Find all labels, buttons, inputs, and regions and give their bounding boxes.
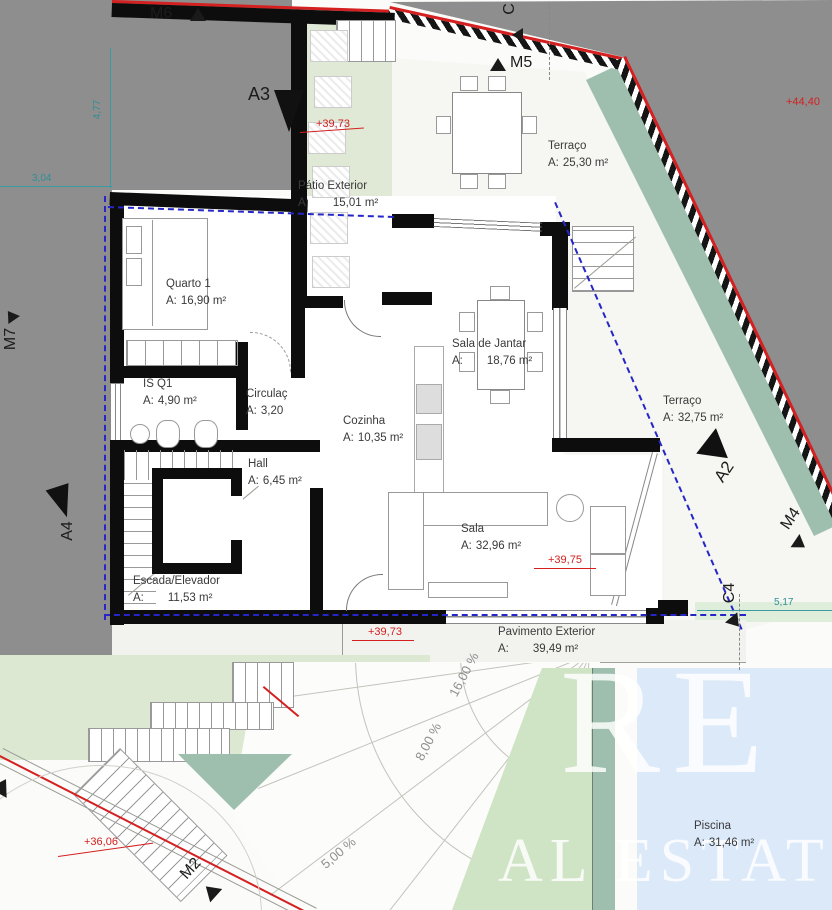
south-wall (110, 610, 446, 624)
toilet-symbol (156, 420, 180, 448)
marker-a3: A3 (248, 84, 270, 105)
marker-a3-arrow-icon (274, 90, 304, 132)
room-name: Sala de Jantar (452, 336, 532, 353)
area-prefix: A: (246, 405, 257, 417)
terrace-chair (488, 76, 506, 91)
room-name: IS Q1 (143, 376, 197, 393)
room-name: Escada/Elevador (133, 573, 220, 590)
room-label-hall: Hall A:6,45 m² (248, 456, 302, 491)
kitchen-appliance (416, 424, 442, 460)
jantar-chair (527, 312, 543, 332)
marker-m7: M7 (2, 328, 20, 350)
room-name: Sala (461, 521, 521, 538)
watermark-line1: RE (560, 636, 776, 808)
level-site-top: +44,40 (786, 96, 820, 108)
room-label-sala-de-jantar: Sala de Jantar A:18,76 m² (452, 336, 532, 371)
jantar-chair (490, 390, 510, 404)
room-name: Hall (248, 456, 302, 473)
room-name: Cozinha (343, 413, 403, 430)
area-value: 15,01 m² (333, 197, 378, 209)
area-value: 18,76 m² (487, 355, 532, 367)
room-label-piscina: Piscina A:31,46 m² (694, 818, 754, 853)
hall-sala-divider (310, 488, 323, 610)
dim-line-right (697, 610, 832, 611)
sofa-chaise (388, 492, 424, 590)
dim-value-right: 5,17 (774, 597, 793, 608)
wardrobe-symbol (126, 340, 238, 366)
patio-west-wall (291, 10, 307, 302)
area-prefix: A: (166, 295, 177, 307)
armchair-symbol (590, 506, 626, 554)
marker-m5-triangle-icon (490, 58, 506, 71)
room-label-circulacao: Circulaç A:3,20 (246, 386, 288, 421)
section-line-c4 (739, 594, 740, 670)
terrace-chair (460, 174, 478, 189)
property-dash-left (104, 196, 106, 620)
bed-blanket-line (152, 220, 153, 326)
bidet-symbol (194, 420, 218, 448)
room-name: Terraço (663, 393, 723, 410)
room-label-terraco-top: Terraço A:25,30 m² (548, 138, 608, 173)
terrace-chair (436, 116, 451, 134)
stepping-stone (310, 30, 348, 62)
area-value: 16,90 m² (181, 295, 226, 307)
terrace-dividing-wall (552, 438, 660, 452)
west-window (110, 383, 124, 443)
marker-c4: C4 (721, 583, 739, 603)
kitchen-appliance (416, 384, 442, 414)
room-name: Quarto 1 (166, 276, 226, 293)
section-line-c (549, 2, 550, 80)
dim-value-vertical: 4,77 (92, 100, 103, 119)
area-prefix: A: (694, 837, 705, 849)
dim-value-horizontal: 3,04 (32, 173, 51, 184)
stepping-stone (312, 256, 350, 288)
marker-c-top: C (501, 3, 519, 15)
area-value: 6,45 m² (263, 475, 302, 487)
room-label-patio-exterior: Pátio Exterior A:15,01 m² (298, 178, 378, 213)
terrace-dining-table (452, 92, 522, 174)
area-value: 31,46 m² (709, 837, 754, 849)
room-label-pavimento-exterior: Pavimento Exterior A:39,49 m² (498, 624, 595, 659)
jantar-east-window (553, 308, 567, 438)
south-window (446, 610, 646, 624)
room-label-is-q1: IS Q1 A:4,90 m² (143, 376, 197, 411)
jantar-chair (459, 312, 475, 332)
watermark-line2: AL ESTATE (498, 826, 832, 897)
marker-a4: A4 (59, 521, 77, 541)
terrace-chair (460, 76, 478, 91)
room-name: Terraço (548, 138, 608, 155)
side-table-round (556, 494, 584, 522)
property-dash-bottom (104, 614, 746, 616)
west-wall-lower (110, 441, 124, 625)
area-value: 39,49 m² (533, 643, 578, 655)
room-label-quarto1: Quarto 1 A:16,90 m² (166, 276, 226, 311)
jantar-north-wall-west (392, 214, 434, 228)
terrace-chair (522, 116, 537, 134)
area-value: 10,35 m² (358, 432, 403, 444)
dim-line-vertical (110, 48, 111, 188)
elevator-shaft (152, 468, 242, 574)
jantar-east-wall (552, 224, 568, 310)
area-prefix: A: (248, 475, 259, 487)
jantar-chair (490, 286, 510, 300)
room-name: Pavimento Exterior (498, 624, 595, 641)
kitchen-west-wall (291, 300, 305, 378)
area-value: 3,20 (261, 405, 283, 417)
bed-pillow (126, 258, 142, 286)
area-prefix: A: (298, 197, 309, 209)
level-driveway: +36,06 (84, 836, 118, 848)
room-name: Piscina (694, 818, 754, 835)
stepping-stone (314, 76, 352, 108)
room-label-sala: Sala A:32,96 m² (461, 521, 521, 556)
marker-m6-triangle-icon (190, 8, 206, 21)
area-prefix: A: (343, 432, 354, 444)
area-prefix: A: (663, 412, 674, 424)
marker-m6: M6 (150, 5, 172, 23)
area-value: 4,90 m² (158, 395, 197, 407)
armchair-symbol (590, 554, 626, 596)
area-prefix: A: (461, 540, 472, 552)
area-prefix: A: (133, 592, 144, 604)
tv-bench (428, 582, 508, 598)
marker-c-triangle-icon (512, 28, 523, 42)
room-label-terraco-right: Terraço A:32,75 m² (663, 393, 723, 428)
bed-pillow (126, 226, 142, 254)
room-name: Pátio Exterior (298, 178, 378, 195)
area-value: 32,96 m² (476, 540, 521, 552)
level-pavimento-line (352, 640, 414, 641)
area-prefix: A: (452, 355, 463, 367)
stepping-stone (310, 212, 348, 244)
area-prefix: A: (548, 157, 559, 169)
exterior-stairs-mid (150, 702, 274, 730)
level-sala-line (534, 568, 596, 569)
area-value: 11,53 m² (168, 592, 213, 604)
level-pavimento: +39,73 (368, 626, 402, 638)
area-value: 32,75 m² (678, 412, 723, 424)
floor-plan-canvas: RE AL ESTATE (0, 0, 832, 910)
marker-m5: M5 (510, 54, 532, 72)
room-name: Circulaç (246, 386, 288, 403)
sink-symbol (130, 424, 150, 444)
marker-a2-arrow-icon (696, 426, 732, 458)
terrace-chair (488, 174, 506, 189)
dim-line-horizontal (0, 186, 112, 187)
area-prefix: A: (143, 395, 154, 407)
green-strip-right (695, 602, 832, 622)
area-value: 25,30 m² (563, 157, 608, 169)
level-sala: +39,75 (548, 554, 582, 566)
room-label-escada-elevador: Escada/Elevador A:11,53 m² (133, 573, 220, 608)
room-label-cozinha: Cozinha A:10,35 m² (343, 413, 403, 448)
elevator-door-gap (231, 496, 243, 540)
area-prefix: A: (498, 643, 509, 655)
kitchen-north-wall-east (382, 292, 432, 305)
